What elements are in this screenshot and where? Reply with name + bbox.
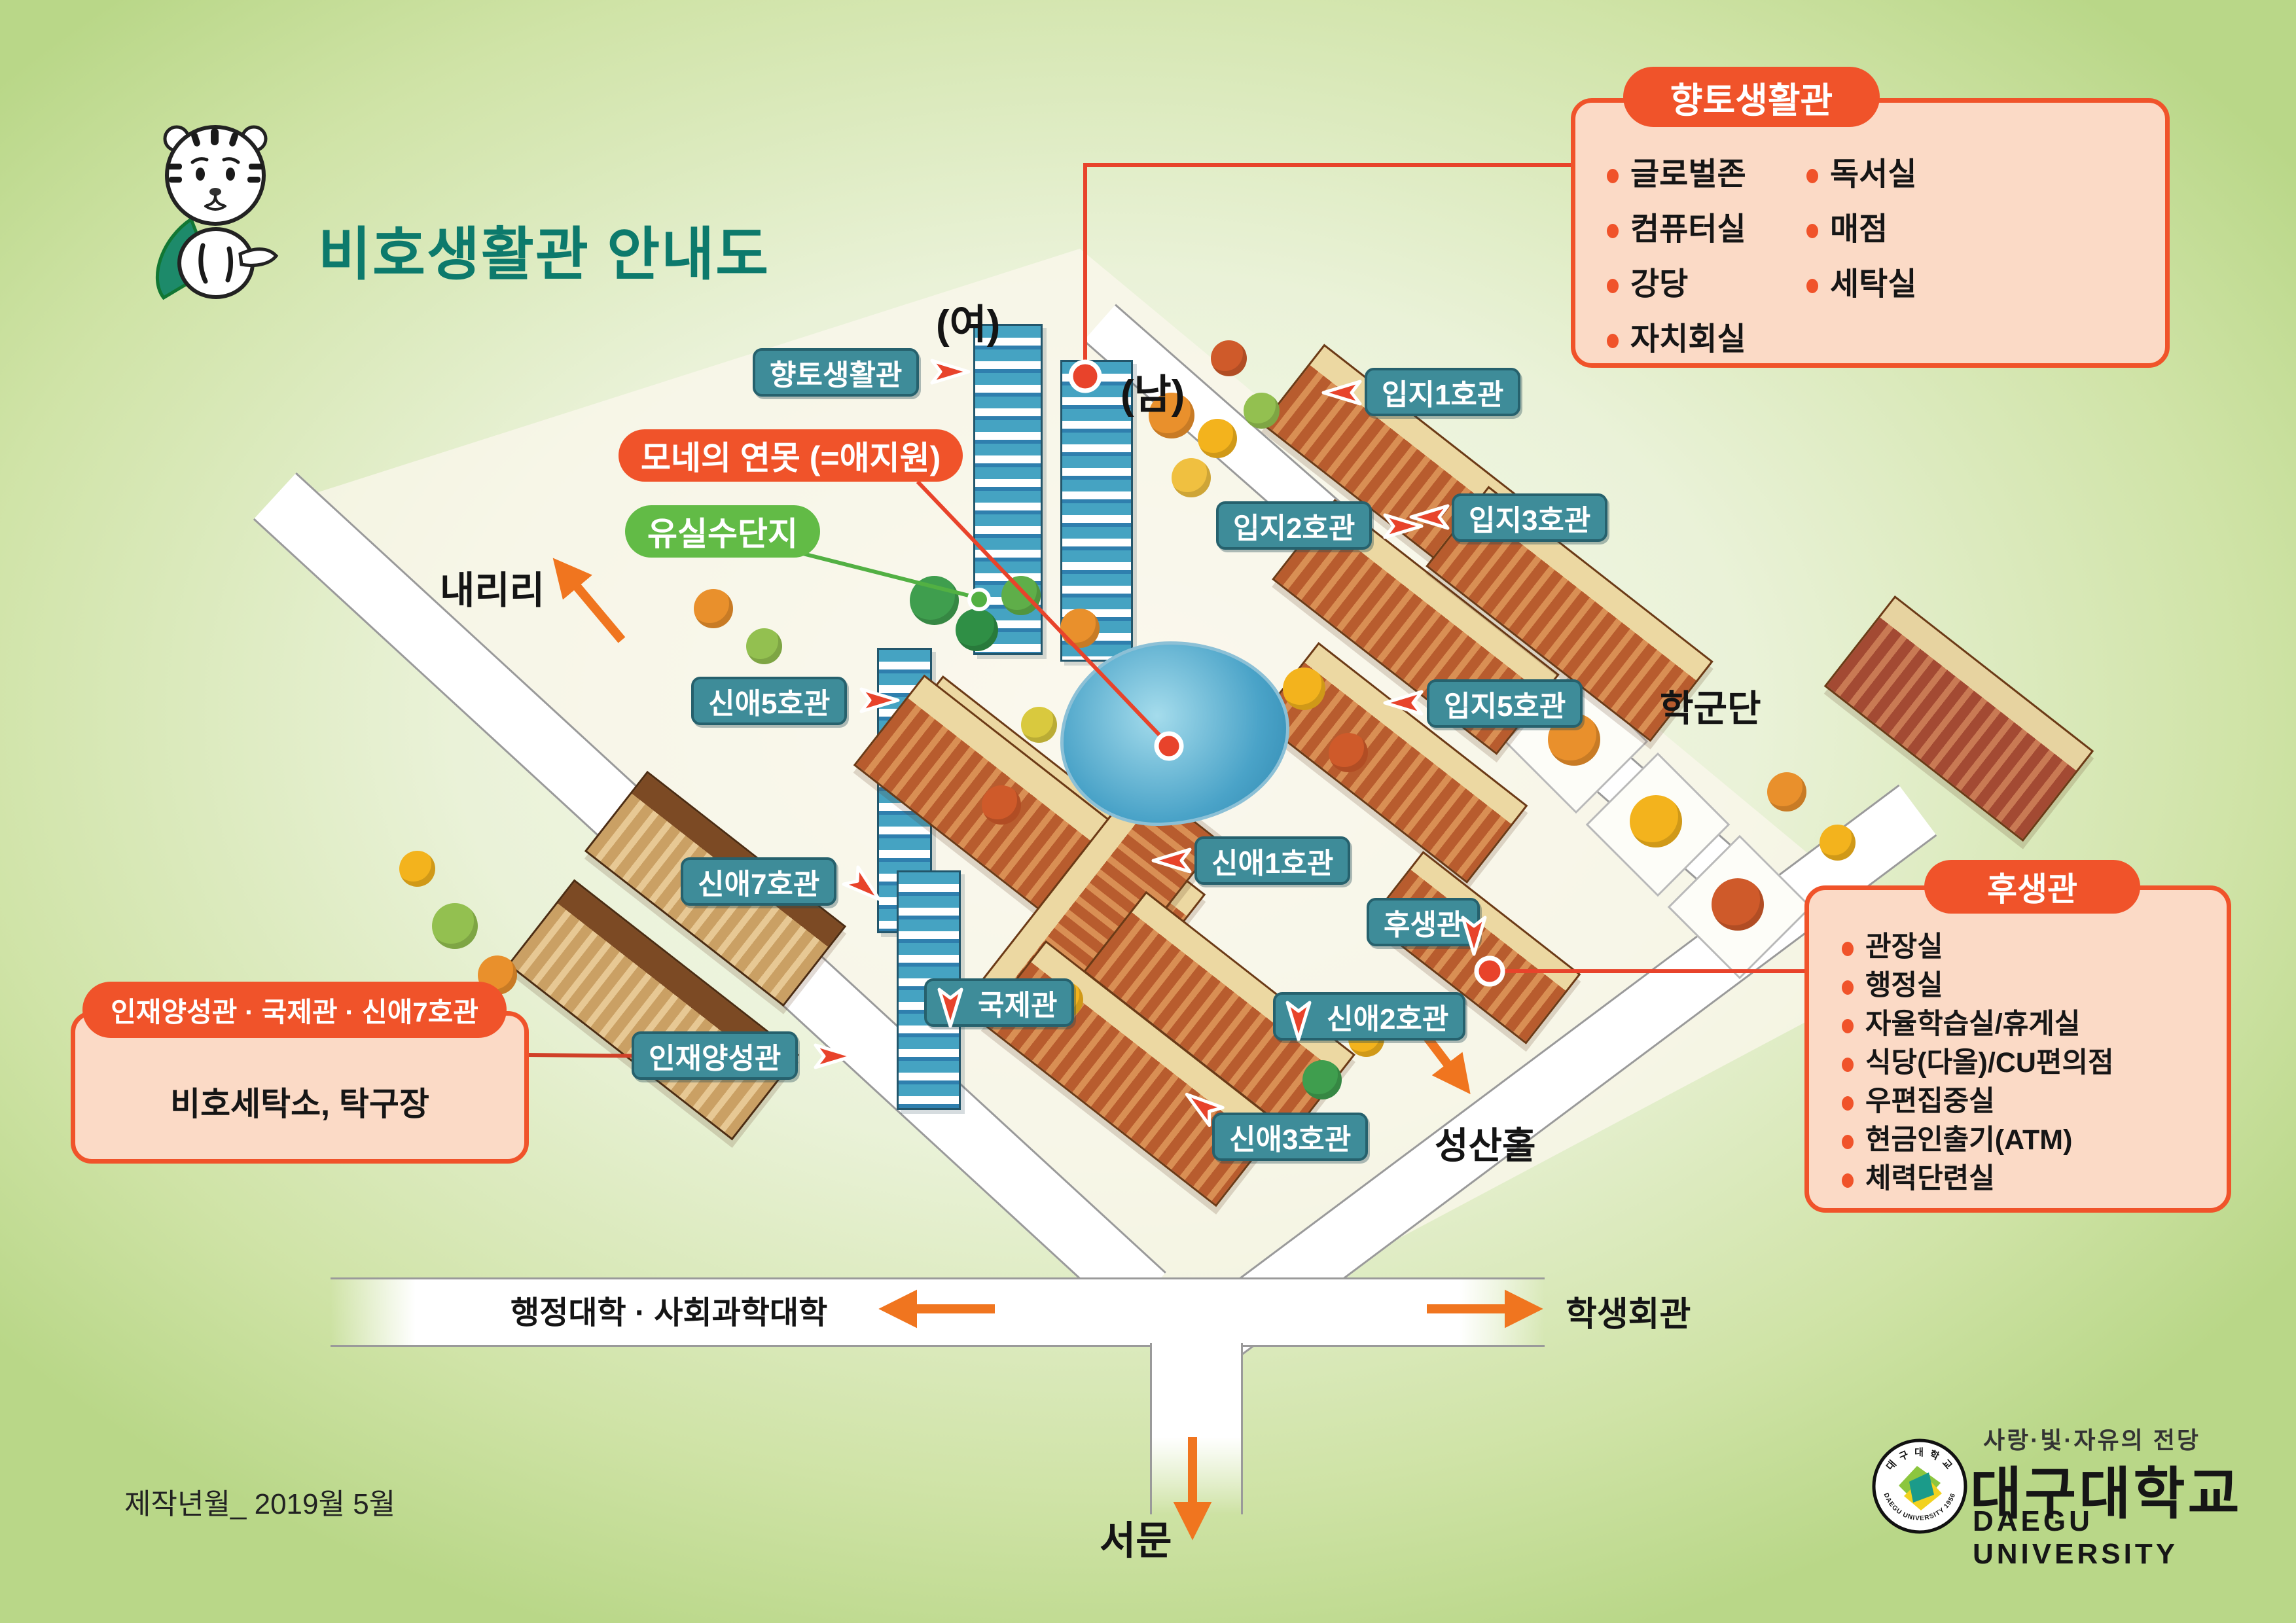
callout-huseang: 관장실 행정실 자율학습실/휴게실 식당(다올)/CU편의점 우편집중실 현금인… [1804, 885, 2231, 1213]
list-item: 독서실 [1801, 147, 1916, 202]
marker-dot-monet [1157, 734, 1181, 758]
huseang-item-list: 관장실 행정실 자율학습실/휴게실 식당(다올)/CU편의점 우편집중실 현금인… [1837, 928, 2114, 1198]
hyangto-item-list-right: 독서실 매점 세탁실 [1801, 147, 1916, 312]
map-label-sinae2: 신애2호관 [1273, 992, 1465, 1041]
connector-yusil [795, 552, 977, 597]
marker-dot-huseang [1477, 958, 1503, 984]
area-label-women: (여) [936, 291, 1000, 350]
map-label-injae: 인재양성관 [632, 1031, 798, 1080]
list-item: 세탁실 [1801, 257, 1916, 312]
connector-monet [918, 482, 1165, 741]
map-label-ipji2: 입지2호관 [1216, 501, 1372, 550]
page-title: 비호생활관 안내도 [318, 208, 770, 291]
map-label-monet-pond: 모네의 연못 (=애지원) [619, 429, 963, 482]
area-label-seomun: 서문 [1100, 1509, 1172, 1566]
list-item: 글로벌존 [1602, 147, 1746, 202]
marker-dot-yusil [969, 590, 989, 609]
area-label-haksaeng: 학생회관 [1566, 1287, 1691, 1336]
list-item: 자치회실 [1602, 312, 1746, 367]
marker-dot-hyangto [1071, 362, 1100, 391]
map-label-ipji3: 입지3호관 [1452, 493, 1607, 542]
area-label-naeriri: 내리리 [440, 560, 545, 615]
tiger-mascot [145, 98, 283, 304]
logo-name-english: DAEGU UNIVERSITY [1973, 1505, 2296, 1571]
hyangto-item-list-left: 글로벌존 컴퓨터실 강당 자치회실 [1602, 147, 1746, 367]
connector-hyangto [1085, 165, 1571, 364]
list-item: 관장실 [1837, 928, 2114, 967]
list-item: 우편집중실 [1837, 1082, 2114, 1121]
area-label-haengjeong: 행정대학 · 사회과학대학 [511, 1287, 827, 1332]
list-item: 식당(다올)/CU편의점 [1837, 1044, 2114, 1082]
area-label-men: (남) [1121, 361, 1185, 420]
list-item: 현금인출기(ATM) [1837, 1121, 2114, 1160]
callout-huseang-title: 후생관 [1924, 860, 2140, 914]
map-label-sinae5: 신애5호관 [691, 677, 847, 725]
list-item: 강당 [1602, 257, 1746, 312]
road-arrow-naeriri [560, 567, 622, 640]
map-label-ipji5: 입지5호관 [1427, 679, 1583, 728]
list-item: 행정실 [1837, 967, 2114, 1005]
map-label-sinae7: 신애7호관 [681, 857, 836, 906]
list-item: 컴퓨터실 [1602, 202, 1746, 257]
map-label-gukje: 국제관 [924, 978, 1074, 1027]
callout-hyangto-title: 향토생활관 [1623, 67, 1880, 127]
map-label-ipji1: 입지1호관 [1365, 368, 1520, 416]
map-label-sinae1: 신애1호관 [1194, 836, 1350, 885]
map-label-sinae3: 신애3호관 [1212, 1113, 1368, 1161]
map-label-yusil: 유실수단지 [625, 505, 820, 558]
callout-facility-body: 비호세탁소, 탁구장 [75, 1078, 524, 1125]
area-label-seongsan: 성산홀 [1435, 1116, 1536, 1169]
map-label-hyangto: 향토생활관 [753, 348, 919, 397]
callout-hyangto: 글로벌존 컴퓨터실 강당 자치회실 독서실 매점 세탁실 [1571, 98, 2170, 368]
area-label-hakgundan: 학군단 [1660, 679, 1761, 732]
production-date: 제작년월_ 2019월 5월 [124, 1480, 395, 1522]
list-item: 체력단련실 [1837, 1160, 2114, 1198]
map-label-huseang: 후생관 [1367, 898, 1480, 946]
university-seal: 대 구 대 학 교 DAEGU UNIVERSITY 1956 [1871, 1437, 1969, 1535]
list-item: 매점 [1801, 202, 1916, 257]
callout-facility-title: 인재양성관 · 국제관 · 신애7호관 [82, 982, 507, 1038]
list-item: 자율학습실/휴게실 [1837, 1005, 2114, 1044]
